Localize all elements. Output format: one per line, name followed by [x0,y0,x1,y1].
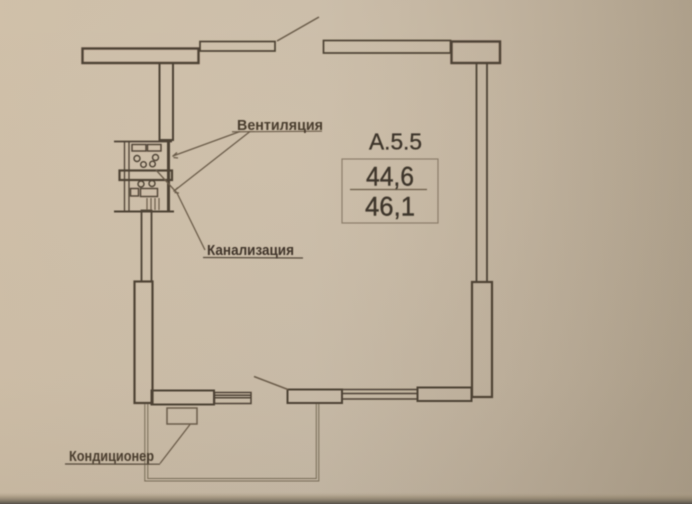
svg-text:А.5.5: А.5.5 [369,129,422,155]
svg-text:44,6: 44,6 [366,162,414,192]
svg-text:Канализация: Канализация [207,243,294,259]
svg-text:Вентиляция: Вентиляция [237,117,323,134]
svg-text:46,1: 46,1 [365,192,415,222]
svg-text:Кондиционер: Кондиционер [69,449,154,465]
